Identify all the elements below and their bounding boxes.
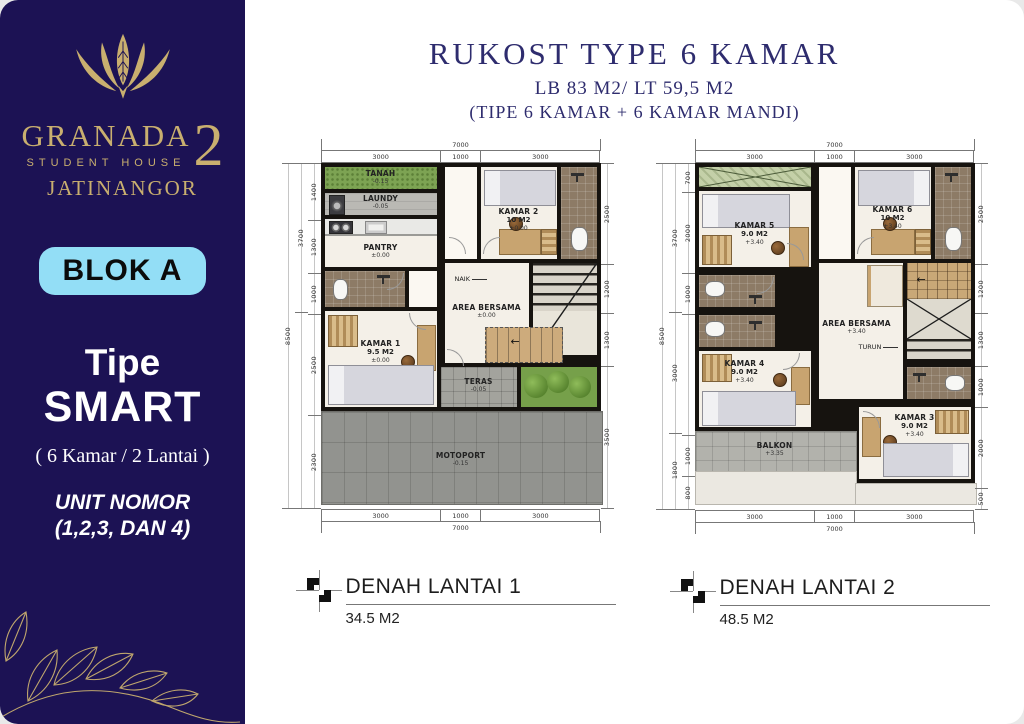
page-title: RUKOST TYPE 6 KAMAR <box>245 36 1024 72</box>
planter-bed <box>521 367 597 407</box>
dimension-left-inner-2: 700 2000 1000 1000 800 <box>682 163 695 510</box>
floorplan-lantai-2: 7000 3000 1000 3000 8500 3700 3000 1800 <box>656 139 988 628</box>
bed-icon <box>484 170 556 206</box>
toilet-icon <box>571 227 588 251</box>
tipe-name: SMART <box>0 384 245 431</box>
brochure-page: GRANADA STUDENT HOUSE 2 JATINANGOR BLOK … <box>0 0 1024 724</box>
dimension-label: 3700 <box>297 229 305 247</box>
unit-heading: UNIT NOMOR <box>0 490 245 516</box>
shrub-icon <box>569 376 591 398</box>
dimension-label: 7000 <box>695 139 975 151</box>
dimension-right-1: 2500 1200 1300 3500 <box>601 163 614 509</box>
dimension-label: 3000 <box>321 151 440 163</box>
caption-title: DENAH LANTAI 2 <box>720 576 990 606</box>
dimension-label: 1200 <box>977 280 985 298</box>
roof-strip <box>695 471 857 505</box>
room-teras <box>441 367 517 407</box>
tipe-detail: ( 6 Kamar / 2 Lantai ) <box>0 445 245 468</box>
dimension-label: 2300 <box>310 453 318 471</box>
dimension-top-2: 7000 3000 1000 3000 <box>695 139 975 163</box>
dimension-label: 700 <box>684 171 692 185</box>
wardrobe-icon <box>702 354 732 382</box>
floorplans-row: 7000 3000 1000 3000 8500 3700 <box>245 139 1024 628</box>
bed-icon <box>702 391 796 426</box>
dimension-label: 1000 <box>684 447 692 465</box>
chair-icon <box>773 373 787 387</box>
dimension-label: 3000 <box>854 510 974 522</box>
dimension-label: 2500 <box>977 205 985 223</box>
roof-cross-lines <box>699 167 811 187</box>
brand-location: JATINANGOR <box>0 176 245 201</box>
shelf-icon <box>915 229 931 255</box>
dimension-label: 2000 <box>977 439 985 457</box>
cabinet-icon <box>867 265 903 307</box>
desk-icon <box>871 229 915 255</box>
dimension-label: 3000 <box>480 151 600 163</box>
plan-caption-2: DENAH LANTAI 2 48.5 M2 <box>682 576 988 628</box>
caption-area: 34.5 M2 <box>346 605 616 627</box>
dimension-label: 1400 <box>310 183 318 201</box>
dimension-label: 1300 <box>977 331 985 349</box>
toilet-icon <box>945 227 962 251</box>
caption-title: DENAH LANTAI 1 <box>346 575 616 605</box>
sidebar: GRANADA STUDENT HOUSE 2 JATINANGOR BLOK … <box>0 0 245 724</box>
toilet-icon <box>705 281 725 297</box>
shower-icon <box>749 321 762 324</box>
stairs-naik-label: NAIK <box>455 275 488 283</box>
dimension-label: 1000 <box>440 509 480 521</box>
stove-icon <box>329 221 353 234</box>
bed-icon <box>883 443 969 477</box>
chair-icon <box>771 241 785 255</box>
chair-icon <box>883 217 897 231</box>
dimension-label: 500 <box>977 492 985 506</box>
wardrobe-icon <box>702 235 732 265</box>
page-subtitle: LB 83 M2/ LT 59,5 M2 <box>245 78 1024 100</box>
hallway <box>409 271 437 307</box>
granada-crest-icon <box>60 30 186 116</box>
page-subtitle-2: (TIPE 6 KAMAR + 6 KAMAR MANDI) <box>245 102 1024 123</box>
room-balkon <box>695 431 857 473</box>
entry-mat <box>485 327 563 363</box>
brand-subtitle: STUDENT HOUSE <box>22 157 191 169</box>
dimension-label: 1000 <box>814 510 854 522</box>
section-marker-icon <box>308 577 332 605</box>
shrub-icon <box>547 371 569 393</box>
dimension-label: 800 <box>684 486 692 500</box>
dimension-label: 1300 <box>310 238 318 256</box>
dimension-left-outer-2: 8500 <box>656 163 669 510</box>
dimension-label: 3500 <box>603 428 611 446</box>
dimension-left-group-2: 3700 3000 1800 <box>669 163 682 510</box>
dimension-label: 3000 <box>321 509 440 521</box>
shelf-icon <box>541 229 557 255</box>
brand-lockup: GRANADA STUDENT HOUSE 2 <box>0 118 245 172</box>
dimension-label: 1300 <box>603 331 611 349</box>
desk-icon <box>499 229 541 255</box>
dimension-label: 7000 <box>321 139 601 151</box>
washing-machine-icon <box>329 195 345 215</box>
dimension-label: 8500 <box>284 327 292 345</box>
toilet-icon <box>333 279 348 300</box>
shower-icon <box>913 373 926 376</box>
toilet-icon <box>705 321 725 337</box>
dimension-label: 7000 <box>321 521 601 533</box>
direction-arrow-icon <box>917 273 926 286</box>
dimension-label: 2000 <box>684 224 692 242</box>
tipe-heading: Tipe <box>0 343 245 384</box>
content-area: RUKOST TYPE 6 KAMAR LB 83 M2/ LT 59,5 M2… <box>245 0 1024 724</box>
dimension-label: 2500 <box>603 205 611 223</box>
sink-icon <box>365 221 387 234</box>
wardrobe-icon <box>328 315 358 347</box>
brand-number: 2 <box>194 118 224 172</box>
section-marker-icon <box>682 578 706 606</box>
dimension-label: 2500 <box>310 356 318 374</box>
dimension-label: 1000 <box>977 378 985 396</box>
staircase-down <box>907 339 971 359</box>
dimension-left-inner-1: 1400 1300 1000 2500 2300 <box>308 163 321 509</box>
blok-badge: BLOK A <box>39 247 207 295</box>
shower-icon <box>945 173 958 176</box>
dimension-label: 1000 <box>684 285 692 303</box>
dimension-label: 8500 <box>658 327 666 345</box>
dimension-left-outer-1: 8500 <box>282 163 295 509</box>
dimension-top-1: 7000 3000 1000 3000 <box>321 139 601 163</box>
bed-icon <box>702 194 790 228</box>
floorplan-canvas-2: KAMAR 59.0 M2+3.40 KAMAR 610 M2+3.40 ARE… <box>695 163 975 503</box>
roof-strip <box>855 483 977 505</box>
direction-arrow-icon <box>511 335 520 348</box>
dimension-label: 7000 <box>695 522 975 534</box>
dimension-label: 1000 <box>440 151 480 163</box>
stairs-turun-label: TURUN <box>859 343 899 351</box>
landing-cross-lines <box>907 299 971 339</box>
dimension-right-2: 2500 1200 1300 1000 2000 500 <box>975 163 988 510</box>
bed-icon <box>328 365 434 405</box>
caption-area: 48.5 M2 <box>720 606 990 628</box>
wardrobe-icon <box>935 410 969 434</box>
dimension-label: 1200 <box>603 280 611 298</box>
floorplan-canvas-1: TANAH-0.15 LAUNDY-0.05 PANTRY±0.00 KAMAR… <box>321 163 601 503</box>
shower-icon <box>571 173 584 176</box>
dimension-label: 1800 <box>671 461 679 479</box>
dimension-label: 3000 <box>671 364 679 382</box>
shower-icon <box>749 295 762 298</box>
dimension-bottom-2: 3000 1000 3000 7000 <box>695 510 975 534</box>
dimension-left-group-1: 3700 <box>295 163 308 509</box>
dimension-label: 1000 <box>310 285 318 303</box>
plan-caption-1: DENAH LANTAI 1 34.5 M2 <box>308 575 614 627</box>
room-tanah <box>325 167 437 189</box>
leaf-decoration-icon <box>0 539 245 724</box>
upper-hall <box>819 167 851 259</box>
floorplan-lantai-1: 7000 3000 1000 3000 8500 3700 <box>282 139 614 628</box>
dimension-label: 3000 <box>480 509 600 521</box>
dimension-bottom-1: 3000 1000 3000 7000 <box>321 509 601 533</box>
bed-icon <box>858 170 930 206</box>
dimension-label: 3000 <box>854 151 974 163</box>
dimension-label: 3000 <box>695 510 814 522</box>
dimension-label: 3700 <box>671 229 679 247</box>
chair-icon <box>509 217 523 231</box>
brand-name: GRANADA <box>22 118 191 154</box>
shrub-icon <box>524 374 548 398</box>
toilet-icon <box>945 375 965 391</box>
dimension-label: 1000 <box>814 151 854 163</box>
dimension-label: 3000 <box>695 151 814 163</box>
room-motoport <box>321 411 603 505</box>
